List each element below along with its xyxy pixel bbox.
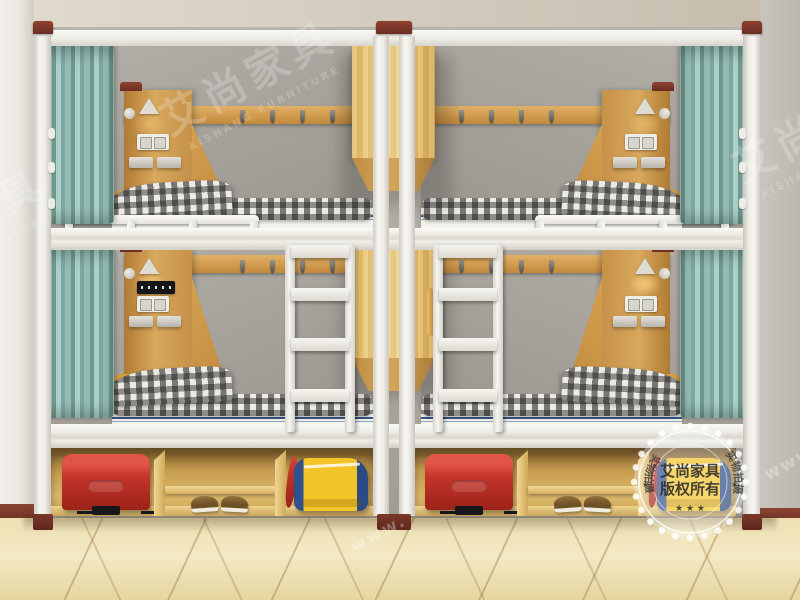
left-wall bbox=[0, 0, 34, 521]
top-beam bbox=[397, 30, 760, 46]
headboard-cap bbox=[652, 82, 674, 91]
ladder-rung bbox=[291, 389, 349, 402]
seal-subtitle: 版权所有 bbox=[660, 480, 720, 498]
wall-knob bbox=[124, 268, 135, 279]
hanging-cabinet-upper bbox=[352, 44, 435, 158]
storage-divider bbox=[154, 450, 165, 516]
headboard-cap bbox=[120, 82, 142, 91]
mount-bracket bbox=[739, 162, 746, 173]
storage-divider bbox=[275, 450, 286, 516]
bedside-shelf bbox=[613, 316, 665, 329]
shoe bbox=[584, 495, 612, 512]
red-suitcase bbox=[425, 454, 513, 510]
shoe bbox=[553, 495, 581, 513]
mount-bracket bbox=[739, 198, 746, 209]
wall-knob bbox=[124, 108, 135, 119]
coat-hook bbox=[519, 260, 524, 273]
bedside-shelf bbox=[613, 157, 665, 170]
coat-hook bbox=[459, 110, 464, 123]
coat-hook bbox=[549, 260, 554, 273]
mount-bracket bbox=[48, 198, 55, 209]
shoe bbox=[190, 495, 218, 513]
mount-bracket bbox=[48, 162, 55, 173]
storage-divider bbox=[517, 450, 528, 516]
wall-knob bbox=[659, 268, 670, 279]
wall-knob bbox=[659, 108, 670, 119]
top-beam bbox=[34, 30, 397, 46]
wall-lamp bbox=[635, 98, 655, 114]
corner-post bbox=[34, 36, 51, 516]
coat-hook bbox=[330, 110, 335, 123]
mount-bracket bbox=[48, 128, 55, 139]
seal-star-left: ★ bbox=[642, 480, 649, 489]
ladder-right bbox=[433, 245, 503, 432]
power-outlet bbox=[137, 296, 169, 312]
power-outlet bbox=[625, 134, 657, 150]
wall-lamp bbox=[139, 98, 159, 114]
right-wall bbox=[760, 0, 800, 525]
control-panel bbox=[137, 281, 175, 294]
hanging-cabinet-lower bbox=[352, 248, 435, 358]
coat-hook bbox=[489, 110, 494, 123]
ladder-rung bbox=[291, 288, 349, 301]
mid-beam-center bbox=[344, 228, 444, 250]
seal-star-right: ★ bbox=[731, 480, 738, 489]
shoe-shelf bbox=[165, 486, 275, 494]
red-suitcase bbox=[62, 454, 150, 510]
bedside-shelf bbox=[129, 157, 181, 170]
coat-hook bbox=[270, 110, 275, 123]
shoe-shelf bbox=[528, 486, 638, 494]
bedside-shelf bbox=[129, 316, 181, 329]
bed-foot bbox=[377, 514, 411, 530]
post-cap bbox=[33, 21, 53, 34]
wall-lamp bbox=[635, 258, 655, 274]
coat-hook bbox=[240, 110, 245, 123]
coat-hook bbox=[240, 260, 245, 273]
coat-hook bbox=[300, 110, 305, 123]
mount-bracket bbox=[739, 128, 746, 139]
bed-foot bbox=[33, 514, 53, 530]
power-outlet bbox=[137, 134, 169, 150]
ladder-rung bbox=[439, 338, 497, 351]
coat-hook bbox=[549, 110, 554, 123]
bunk-bed-product-photo: 艾尚家具 AISHANG FURNITURE 艾尚家具 AISHANG FURN… bbox=[0, 0, 800, 600]
seal-stars: ★ ★ ★ bbox=[675, 504, 705, 514]
coat-hook bbox=[519, 110, 524, 123]
power-outlet bbox=[625, 296, 657, 312]
lamp-glow bbox=[628, 112, 662, 136]
ladder-rung bbox=[291, 245, 349, 258]
ladder-rung bbox=[439, 389, 497, 402]
lamp-glow bbox=[628, 272, 662, 296]
ladder-rung bbox=[439, 288, 497, 301]
post-cap bbox=[742, 21, 762, 34]
center-post bbox=[373, 36, 389, 516]
copyright-seal: 实物拍摄 实物拍摄 艾尚家具 版权所有 ★ ★ ★ ★ ★ bbox=[628, 420, 752, 544]
ladder-rung bbox=[439, 245, 497, 258]
ladder-rung bbox=[291, 338, 349, 351]
seal-title: 艾尚家具 bbox=[660, 462, 720, 480]
post-cap bbox=[376, 21, 412, 34]
coat-hook bbox=[270, 260, 275, 273]
ladder-left bbox=[285, 245, 355, 432]
center-post bbox=[399, 36, 415, 516]
lamp-glow bbox=[132, 112, 166, 136]
wall-lamp bbox=[139, 258, 159, 274]
duffel-bag bbox=[294, 458, 368, 511]
shoe bbox=[221, 495, 249, 512]
under-bed-storage-left bbox=[51, 448, 373, 516]
